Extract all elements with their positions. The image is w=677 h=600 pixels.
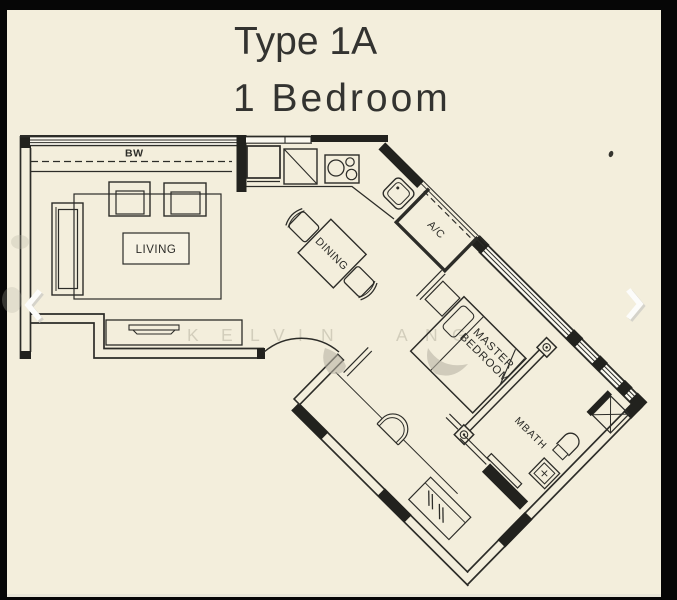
svg-text:BW: BW	[125, 148, 144, 160]
svg-text:1 Bedroom: 1 Bedroom	[233, 77, 451, 120]
svg-text:K: K	[187, 325, 199, 345]
svg-text:I: I	[298, 325, 303, 345]
svg-text:LIVING: LIVING	[136, 244, 177, 256]
svg-text:E: E	[221, 325, 233, 345]
svg-text:A: A	[396, 325, 408, 345]
svg-text:Type 1A: Type 1A	[234, 20, 377, 63]
svg-text:L: L	[250, 325, 260, 345]
